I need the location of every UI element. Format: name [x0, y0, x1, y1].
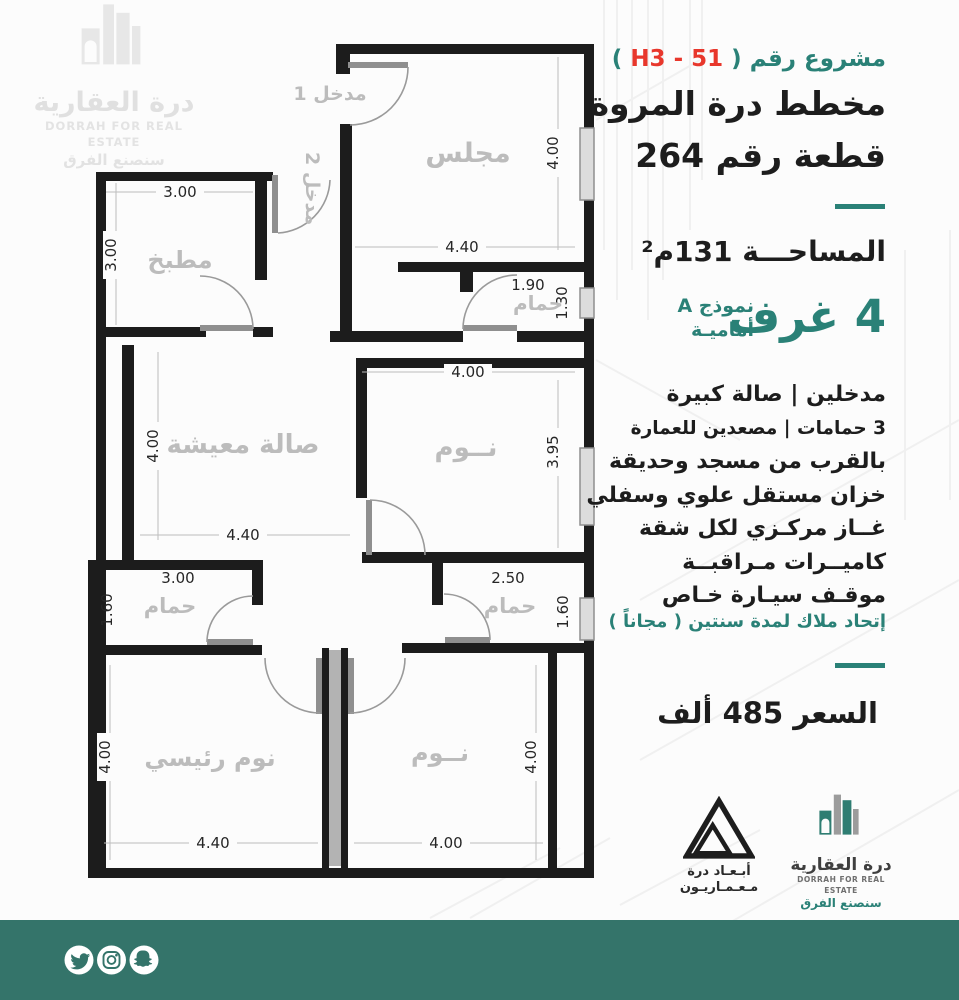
model-type-line2: أماميـة: [677, 318, 754, 342]
price-line: السعر 485 ألف: [657, 696, 878, 730]
owners-union-note: إتحاد ملاك لمدة سنتين ( مجاناً ): [609, 611, 886, 632]
dim-bath-right-width: 2.50: [491, 569, 524, 587]
divider-bottom: [835, 663, 885, 668]
room-label-living: صالة معيشة: [166, 430, 319, 460]
features-list: مدخلين | صالة كبيرة 3 حمامات | مصعدين لل…: [610, 378, 886, 613]
feature-item: كاميــرات مـراقبــة: [610, 546, 886, 580]
feature-item: بالقرب من مسجد وحديقة: [610, 445, 886, 479]
snapchat-icon[interactable]: [130, 946, 159, 975]
instagram-icon[interactable]: [97, 946, 126, 975]
room-label-bedroom-mid: نــوم: [435, 433, 498, 463]
dim-bedroom-bottom-width: 4.00: [429, 834, 462, 852]
room-label-master: نوم رئيسي: [144, 744, 275, 772]
feature-item: غــاز مركـزي لكل شقة: [610, 512, 886, 546]
dim-bath-left-width: 3.00: [161, 569, 194, 587]
dorrah-slogan: سنصنع الفرق: [786, 896, 896, 911]
dorrah-buildings-icon: [813, 790, 869, 852]
dim-bedroom-mid-height: 3.95: [544, 435, 562, 468]
area-line: المساحـــة 131م²: [641, 235, 886, 268]
dim-bath-right-height: 1.60: [554, 595, 572, 628]
dorrah-latin-name: DORRAH FOR REAL ESTATE: [786, 874, 896, 896]
feature-item: 3 حمامات | مصعدين للعمارة: [610, 412, 886, 446]
twitter-icon[interactable]: [65, 946, 94, 975]
abaad-logo: أبـعـاد درة مـعـمـاريـون: [664, 796, 774, 896]
social-icons: [55, 920, 235, 1000]
divider-top: [835, 204, 885, 209]
feature-item: خزان مستقل علوي وسفلي: [610, 479, 886, 513]
poster-canvas: درة العقارية DORRAH FOR REAL ESTATE سنصن…: [0, 0, 959, 1000]
window-icon: [580, 128, 594, 200]
room-label-bath-mid: حمام: [513, 291, 563, 315]
dorrah-logo: درة العقارية DORRAH FOR REAL ESTATE سنصن…: [786, 790, 896, 911]
project-label: مشروع رقم: [750, 46, 886, 72]
abaad-subtitle: مـعـمـاريـون: [664, 880, 774, 896]
window-icon: [580, 598, 594, 640]
abaad-triangle-icon: [683, 796, 755, 860]
dim-master-width: 4.40: [196, 834, 229, 852]
dim-kitchen-height: 3.00: [102, 238, 120, 271]
footer-bar: Dorrah_2030: [0, 920, 959, 1000]
dim-bedroom-mid-width: 4.00: [451, 363, 484, 381]
plot-number: قطعة رقم 264: [635, 136, 886, 175]
dim-living-width: 4.40: [226, 526, 259, 544]
dim-living-height: 4.00: [144, 429, 162, 462]
dim-bedroom-bottom-height: 4.00: [522, 740, 540, 773]
project-number-line: مشروع رقم ( H3 - 51 ): [612, 46, 886, 72]
dim-bath-left-height: 1.60: [98, 593, 116, 626]
dim-majlis-height: 4.00: [544, 136, 562, 169]
room-label-majlis: مجلس: [425, 138, 510, 169]
window-icon: [580, 288, 594, 318]
project-code: H3 - 51: [630, 46, 723, 72]
paren-open: (: [612, 46, 623, 72]
dim-kitchen-width: 3.00: [163, 183, 196, 201]
dorrah-arabic-name: درة العقارية: [786, 856, 896, 874]
room-label-kitchen: مطبخ: [147, 246, 212, 274]
abaad-name: أبـعـاد درة: [664, 864, 774, 880]
model-row: 4 غرف نموذج A أماميـة: [610, 288, 886, 358]
floor-plan: 4.40 4.00 3.00 3.00 1.90 1.30 4.00 4.40 …: [0, 0, 640, 920]
model-type: نموذج A أماميـة: [677, 294, 754, 342]
feature-item: موقـف سيـارة خـاص: [610, 579, 886, 613]
paren-close: ): [731, 46, 742, 72]
room-label-bedroom-bottom: نــوم: [411, 739, 469, 767]
label-entrance-2: مدخل 2: [301, 152, 323, 225]
corridor-wall-core: [329, 650, 341, 866]
dim-majlis-width: 4.40: [445, 238, 478, 256]
model-type-line1: نموذج A: [677, 294, 754, 318]
dim-master-height: 4.00: [96, 740, 114, 773]
label-entrance-1: مدخل 1: [293, 83, 366, 105]
feature-item: مدخلين | صالة كبيرة: [610, 378, 886, 412]
room-label-bath-right: حمام: [484, 594, 537, 618]
plan-title: مخطط درة المروة: [590, 84, 886, 123]
room-label-bath-left: حمام: [144, 594, 197, 618]
